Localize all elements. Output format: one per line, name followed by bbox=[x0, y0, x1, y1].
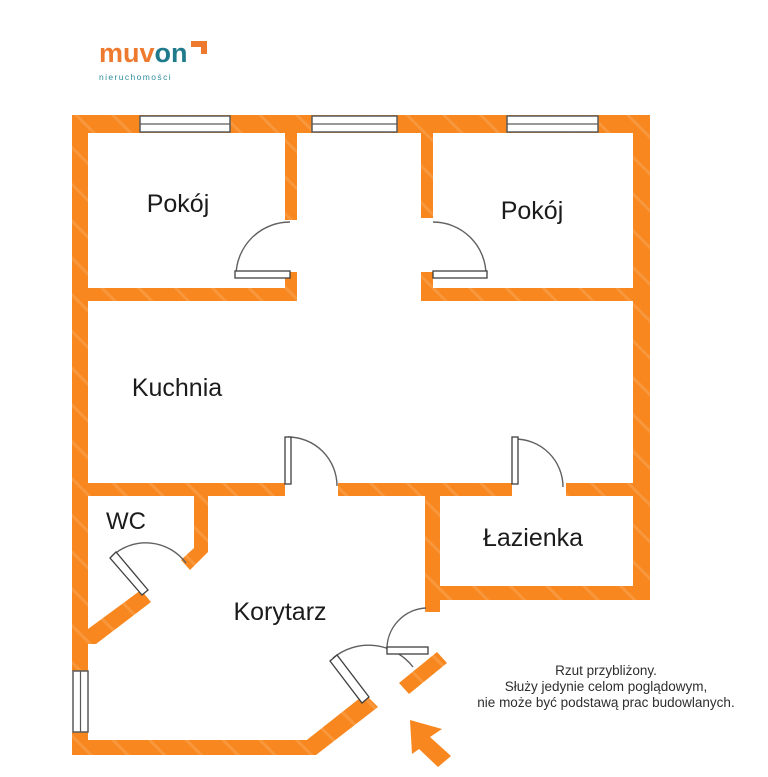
window-kuchnia-top bbox=[312, 116, 397, 132]
wall-wc-corner-stub bbox=[181, 548, 208, 570]
entrance-arrow-icon bbox=[410, 720, 451, 767]
window-pokoj-left bbox=[140, 116, 230, 132]
disclaimer-line-2: Służy jedynie celom poglądowym, bbox=[450, 679, 762, 695]
wall-wc-right bbox=[194, 496, 208, 552]
wall-pokoj-right-divider bbox=[421, 133, 433, 218]
disclaimer-text: Rzut przybliżony. Służy jedynie celom po… bbox=[450, 663, 762, 711]
floor-plan-drawing: Pokój Pokój Kuchnia WC Łazienka Korytarz bbox=[0, 0, 768, 777]
wall-entrance-stub bbox=[399, 652, 447, 694]
door-pokoj-right bbox=[433, 222, 487, 278]
window-korytarz-left bbox=[73, 671, 88, 732]
room-label-pokoj-right: Pokój bbox=[501, 197, 564, 225]
wall-hall-top-c bbox=[566, 483, 633, 496]
floor-plan-page: muvon nieruchomości bbox=[0, 0, 768, 777]
wall-pokoj-right-bottom bbox=[421, 288, 633, 301]
room-label-lazienka: Łazienka bbox=[483, 524, 583, 552]
disclaimer-line-1: Rzut przybliżony. bbox=[450, 663, 762, 679]
room-label-korytarz: Korytarz bbox=[233, 598, 326, 626]
room-label-kuchnia: Kuchnia bbox=[132, 374, 222, 402]
wall-right bbox=[633, 133, 650, 600]
wall-lazienka-bottom bbox=[425, 586, 650, 600]
wall-entrance-chamfer bbox=[303, 694, 378, 755]
wall-wc-chamfer bbox=[88, 590, 151, 644]
door-entrance-inner bbox=[387, 608, 428, 654]
wall-pokoj-left-bottom bbox=[88, 288, 297, 301]
wall-hall-top-b bbox=[338, 483, 512, 496]
room-label-wc: WC bbox=[106, 508, 146, 535]
room-labels: Pokój Pokój Kuchnia WC Łazienka Korytarz bbox=[106, 190, 583, 626]
door-korytarz bbox=[285, 437, 337, 486]
room-label-pokoj-left: Pokój bbox=[147, 190, 210, 218]
wall-pokoj-left-divider bbox=[285, 133, 297, 220]
disclaimer-line-3: nie może być podstawą prac budowlanych. bbox=[450, 695, 762, 711]
door-pokoj-left bbox=[235, 222, 290, 278]
door-lazienka bbox=[512, 437, 563, 487]
wall-left-upper bbox=[72, 133, 88, 671]
wall-pokoj-right-jamb bbox=[421, 272, 433, 289]
door-wc bbox=[110, 543, 186, 595]
window-pokoj-right bbox=[507, 116, 598, 132]
wall-hall-top-a bbox=[88, 483, 285, 496]
wall-korytarz-bottom bbox=[72, 740, 316, 755]
